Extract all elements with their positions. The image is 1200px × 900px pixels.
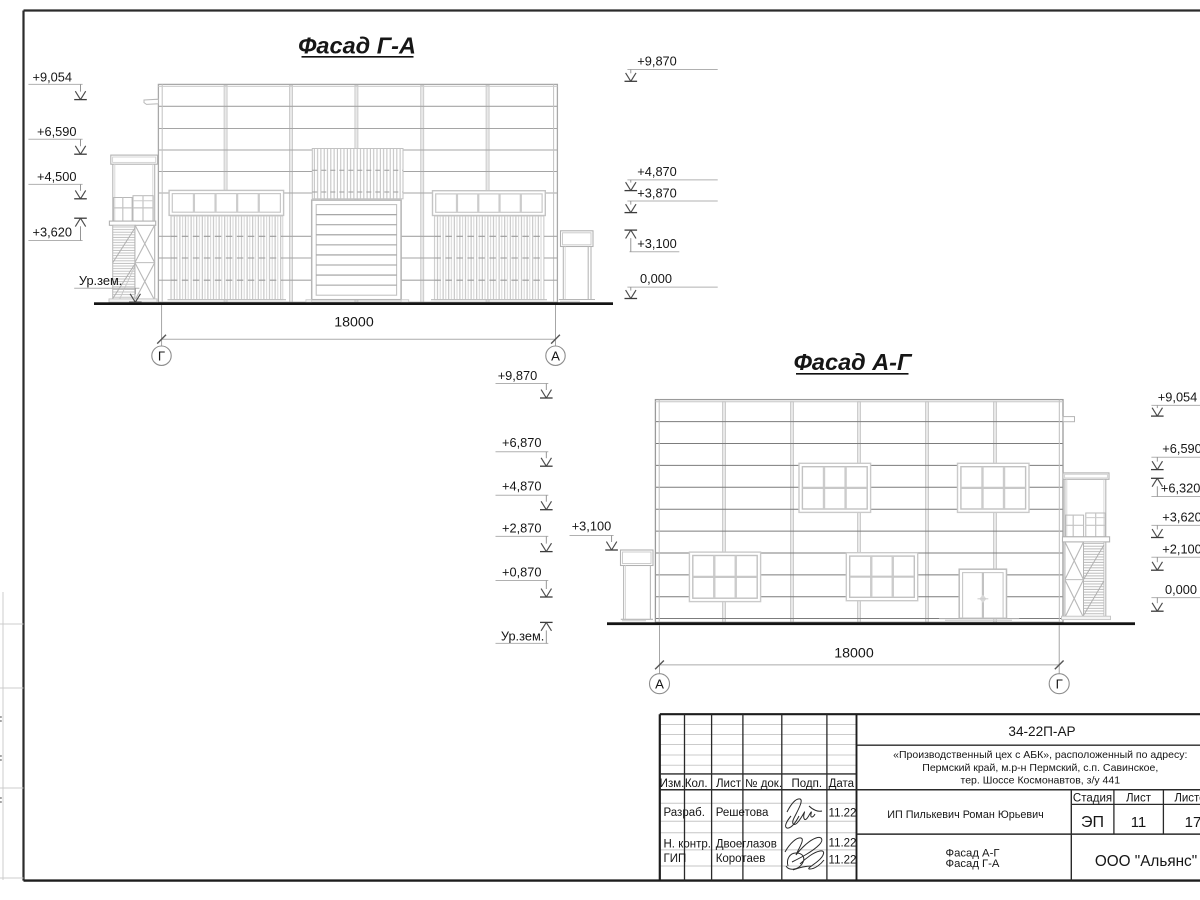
svg-text:+6,870: +6,870	[502, 435, 542, 450]
svg-text:«Производственный цех с АБК»,: «Производственный цех с АБК», расположен…	[893, 749, 1187, 761]
svg-text:+0,870: +0,870	[502, 564, 542, 579]
svg-text:+6,320: +6,320	[1161, 481, 1200, 496]
svg-text:ИП Пилькевич Роман Юрьевич: ИП Пилькевич Роман Юрьевич	[887, 809, 1044, 821]
svg-text:+3,100: +3,100	[637, 236, 677, 251]
svg-text:17: 17	[1185, 814, 1200, 831]
svg-text:Лист: Лист	[716, 778, 742, 790]
svg-text:+9,054: +9,054	[1158, 390, 1198, 405]
svg-text:тер. Шоссе Космонавтов, з/у 44: тер. Шоссе Космонавтов, з/у 441	[961, 774, 1121, 786]
svg-text:Разраб.: Разраб.	[664, 807, 705, 819]
svg-text:11: 11	[1131, 814, 1147, 831]
svg-text:Решетова: Решетова	[716, 807, 769, 819]
svg-text:ООО "Альянс": ООО "Альянс"	[1095, 853, 1197, 870]
svg-text:+3,100: +3,100	[572, 519, 612, 534]
svg-text:+4,870: +4,870	[637, 164, 677, 179]
svg-text:+3,620: +3,620	[33, 225, 73, 240]
svg-text:А: А	[551, 348, 560, 363]
svg-text:ГИП: ГИП	[664, 853, 687, 865]
svg-text:Г: Г	[158, 348, 165, 363]
svg-text:Коротаев: Коротаев	[716, 853, 766, 865]
svg-text:11.22: 11.22	[829, 854, 857, 866]
svg-text:+4,870: +4,870	[502, 478, 542, 493]
svg-text:Кол.: Кол.	[685, 778, 708, 790]
svg-text:Подп.: Подп.	[792, 778, 823, 790]
svg-text:+6,590: +6,590	[37, 124, 77, 139]
svg-text:Н. контр.: Н. контр.	[664, 839, 711, 851]
svg-text:11.22: 11.22	[829, 838, 857, 850]
svg-text:Дата: Дата	[829, 778, 855, 790]
svg-text:18000: 18000	[834, 645, 874, 661]
svg-text:+2,100: +2,100	[1162, 541, 1200, 556]
svg-text:№ док.: № док.	[745, 778, 782, 790]
svg-text:+2,870: +2,870	[502, 520, 542, 535]
svg-text:Стадия: Стадия	[1073, 793, 1112, 805]
svg-text:Ур.зем.: Ур.зем.	[79, 273, 122, 288]
svg-text:+9,870: +9,870	[637, 54, 677, 69]
svg-text:А: А	[655, 677, 664, 692]
svg-text:Изм.: Изм.	[660, 778, 685, 790]
svg-text:0,000: 0,000	[1165, 582, 1197, 597]
svg-text:ЭП: ЭП	[1081, 814, 1104, 831]
svg-text:Пермский край, м.р-н Пермский,: Пермский край, м.р-н Пермский, с.п. Сави…	[922, 762, 1158, 774]
svg-text:+9,870: +9,870	[498, 368, 538, 383]
svg-text:+9,054: +9,054	[33, 70, 73, 85]
svg-text:Фасад А-Г: Фасад А-Г	[794, 349, 913, 375]
svg-text:Лист: Лист	[1126, 793, 1152, 805]
svg-text:34-22П-АР: 34-22П-АР	[1008, 724, 1075, 739]
svg-text:Фасад Г-А: Фасад Г-А	[946, 858, 1000, 870]
svg-text:Г: Г	[1056, 677, 1063, 692]
svg-text:Листов: Листов	[1174, 793, 1200, 805]
svg-text:Ур.зем.: Ур.зем.	[501, 628, 544, 643]
svg-text:11.22: 11.22	[829, 808, 857, 820]
svg-text:+3,870: +3,870	[637, 186, 677, 201]
svg-text:Двоеглазов: Двоеглазов	[716, 839, 777, 851]
svg-text:+3,620: +3,620	[1162, 510, 1200, 525]
svg-text:18000: 18000	[334, 314, 374, 330]
svg-text:+6,590: +6,590	[1162, 441, 1200, 456]
svg-text:0,000: 0,000	[640, 271, 672, 286]
svg-text:Фасад Г-А: Фасад Г-А	[298, 33, 416, 59]
svg-text:+4,500: +4,500	[37, 169, 77, 184]
